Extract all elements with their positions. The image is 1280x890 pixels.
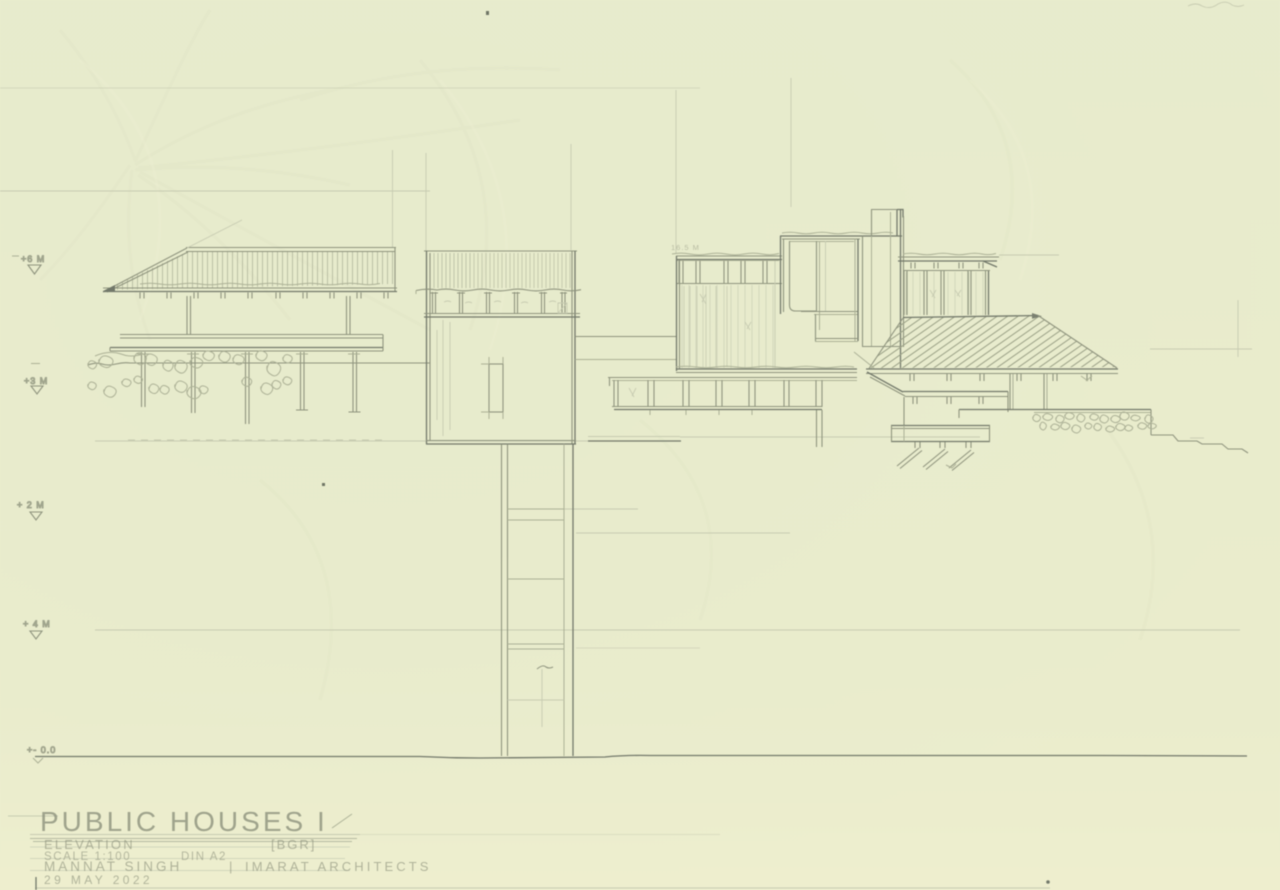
svg-text:+6 M: +6 M [21,254,45,264]
svg-text:|: | [229,859,232,874]
svg-text:+3 M: +3 M [24,376,48,386]
svg-text:[BGR]: [BGR] [271,837,316,852]
svg-text:29 MAY 2022: 29 MAY 2022 [44,873,153,887]
svg-text:16.5 M: 16.5 M [671,243,700,252]
svg-text:DIN A2: DIN A2 [181,851,227,863]
svg-text:ELEVATION: ELEVATION [44,837,135,852]
svg-text:PUBLIC HOUSES I: PUBLIC HOUSES I [40,806,328,837]
svg-text:MANNAT SINGH: MANNAT SINGH [44,859,182,874]
svg-text:IMARAT ARCHITECTS: IMARAT ARCHITECTS [245,859,432,874]
svg-text:+- 0.0: +- 0.0 [27,745,56,755]
svg-text:+ 4 M: + 4 M [23,619,51,629]
svg-text:+ 2 M: + 2 M [17,500,45,510]
